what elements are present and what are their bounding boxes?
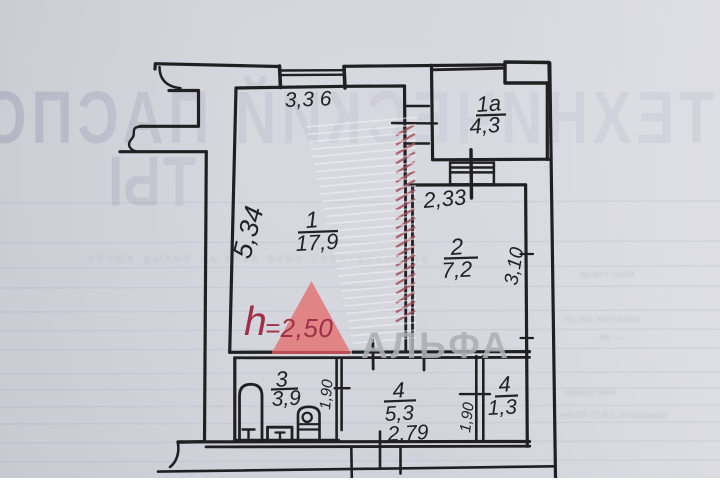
svg-text:нв. —: нв. — (600, 332, 624, 342)
svg-text:17,9: 17,9 (295, 229, 339, 256)
svg-text:АЛЬФА: АЛЬФА (361, 325, 511, 366)
svg-text:2,33: 2,33 (421, 184, 468, 213)
svg-text:ткт. вээ нөтп-вэвчк: ткт. вээ нөтп-вэвчк (563, 314, 640, 324)
svg-text:4,3: 4,3 (469, 112, 502, 139)
svg-text:3,9: 3,9 (271, 386, 302, 411)
svg-text:кы-вк-т нетсв: кы-вк-т нетсв (580, 269, 635, 279)
svg-text:h: h (244, 298, 267, 344)
svg-text:1,90: 1,90 (317, 378, 337, 410)
svg-text:=2,50: =2,50 (265, 313, 333, 343)
svg-text:2,79: 2,79 (386, 421, 429, 446)
svg-text:вэ6-07-71 6.1.Э нъкырвьэ: вэ6-07-71 6.1.Э нъкырвьэ (560, 410, 667, 420)
svg-text:7,2: 7,2 (441, 256, 473, 283)
svg-text:1,3: 1,3 (487, 395, 518, 420)
svg-text:4: 4 (392, 377, 406, 403)
svg-text:ТЫ: ТЫ (106, 143, 196, 221)
svg-text:4: 4 (498, 371, 512, 397)
svg-text:3,3 6: 3,3 6 (284, 87, 332, 112)
svg-text:нвіэкоч тввэ: нвіэкоч тввэ (565, 387, 616, 397)
